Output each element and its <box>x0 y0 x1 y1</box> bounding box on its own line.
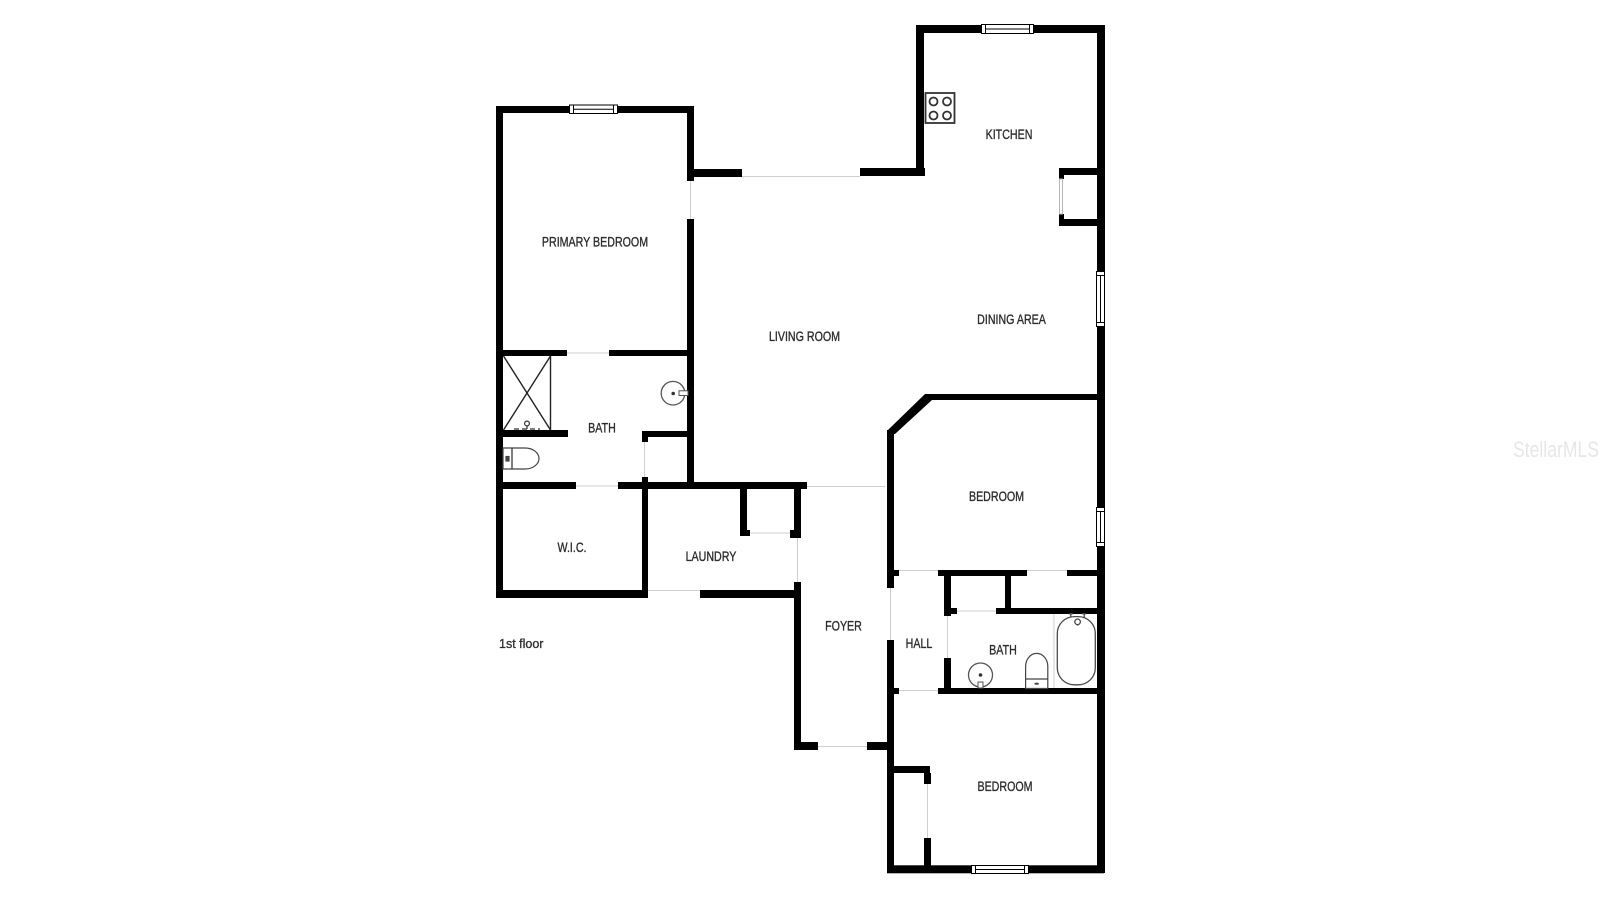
svg-text:BEDROOM: BEDROOM <box>977 779 1032 795</box>
svg-text:W.I.C.: W.I.C. <box>557 540 586 556</box>
svg-text:LIVING ROOM: LIVING ROOM <box>769 329 840 345</box>
svg-text:BATH: BATH <box>588 420 616 436</box>
svg-text:BATH: BATH <box>989 642 1017 658</box>
svg-text:PRIMARY BEDROOM: PRIMARY BEDROOM <box>542 234 648 250</box>
svg-text:DINING AREA: DINING AREA <box>977 312 1046 328</box>
svg-text:1st floor: 1st floor <box>499 637 543 651</box>
svg-text:StellarMLS: StellarMLS <box>1513 438 1599 462</box>
svg-text:FOYER: FOYER <box>825 618 862 634</box>
svg-text:HALL: HALL <box>906 636 933 652</box>
svg-text:LAUNDRY: LAUNDRY <box>686 549 737 565</box>
svg-text:KITCHEN: KITCHEN <box>986 127 1033 143</box>
svg-text:BEDROOM: BEDROOM <box>969 489 1024 505</box>
